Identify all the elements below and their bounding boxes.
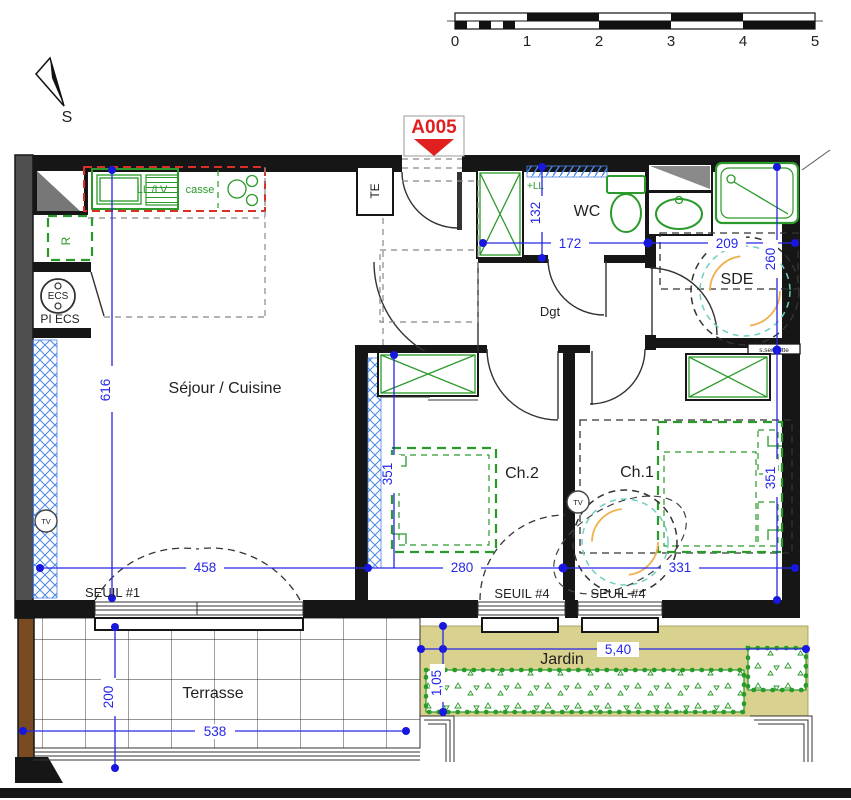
scale-tick-4: 4 [739,33,747,50]
ch1-window-sill [582,618,658,632]
north-label: S [62,109,73,126]
kitchen: LL /LV casse R ECS PI ECS TE [33,167,393,348]
dim-sejour-width: 458 [194,560,217,575]
ecs-closet: ECS PI ECS [33,262,104,338]
scale-tick-3: 3 [667,33,675,50]
dgt-label: Dgt [540,304,561,319]
scale-tick-0: 0 [451,33,459,50]
tv-outlet-ch1: TV [567,491,589,513]
seuil1-label: SEUIL #1 [85,585,140,600]
sde-shaft [648,164,712,191]
scale-tick-1: 1 [523,33,531,50]
terrace-door-sill [95,618,303,630]
sde-label: SDE [721,271,754,288]
dim-ch1-height: 351 [763,467,778,490]
terrace-edge-lines [33,752,420,760]
dim-ch2-height: 351 [380,463,395,486]
dim-jardin-depth: 1,05 [429,670,444,696]
dim-ch2-width: 280 [451,560,474,575]
svg-text:TV: TV [573,498,583,507]
dim-jardin-width: 5,40 [605,642,631,657]
terrace-french-door [95,548,303,615]
svg-text:TV: TV [41,517,51,526]
shower-icon [716,163,798,223]
casse-label: casse [186,184,215,196]
ch2-label: Ch.2 [505,465,539,482]
dim-terrasse-width: 538 [204,724,227,739]
duct-shaft [33,167,88,215]
dim-sejour-height: 616 [98,379,113,402]
site-boundary [0,788,851,798]
pi-ecs-label: PI ECS [40,312,79,326]
wc-label: WC [574,203,601,220]
entry-zone-dashed [380,250,478,322]
jardin-steps [750,716,812,762]
toilet-icon [607,176,645,232]
ch2-closet [378,352,478,400]
electrical-panel: TE [357,167,393,215]
terrasse-label: Terrasse [182,685,243,702]
entry-tag-label: A005 [411,117,457,138]
ch1-closet [686,354,770,400]
floor-plan-canvas: A005 LL /LV casse R ECS [0,0,851,800]
dim-terrasse-height: 200 [101,686,116,709]
terrace-steps [420,716,454,762]
floor-plan-page: A005 LL /LV casse R ECS [0,0,851,800]
dim-ch1-width: 331 [669,560,692,575]
hedge-row [426,670,744,712]
ch2-bed [392,448,496,552]
terrace-corner [15,757,63,783]
sejour-label: Séjour / Cuisine [169,380,282,397]
north-arrow-icon: S [36,58,72,126]
sink-bowl [228,180,246,198]
dim-sde-height: 260 [763,248,778,271]
te-label: TE [368,183,382,198]
ch1-clearance-rect [580,420,792,553]
ecs-label: ECS [48,291,69,302]
fridge-label: R [59,236,73,245]
dim-wc-height: 132 [528,202,543,225]
jardin-label: Jardin [540,651,584,668]
washer-label: LL /LV [137,184,168,196]
hedge-block [748,648,806,690]
washbasin-icon [648,192,712,235]
scale-tick-2: 2 [595,33,603,50]
tv-outlet-left: TV [35,510,57,532]
terrace-side-wall [18,618,34,765]
seuil4-label-ch2: SEUIL #4 [494,586,549,601]
dim-wc-width: 172 [559,236,582,251]
ch1-label: Ch.1 [620,464,654,481]
entrance: A005 [402,116,464,230]
scale-bar: 0 1 2 3 4 5 [447,13,823,50]
seuil4-label-ch1: SEUIL #4 [590,586,645,601]
ch1-window [578,602,662,615]
scale-tick-5: 5 [811,33,819,50]
dim-sde-width: 209 [716,236,739,251]
ch2-window-sill [482,618,558,632]
